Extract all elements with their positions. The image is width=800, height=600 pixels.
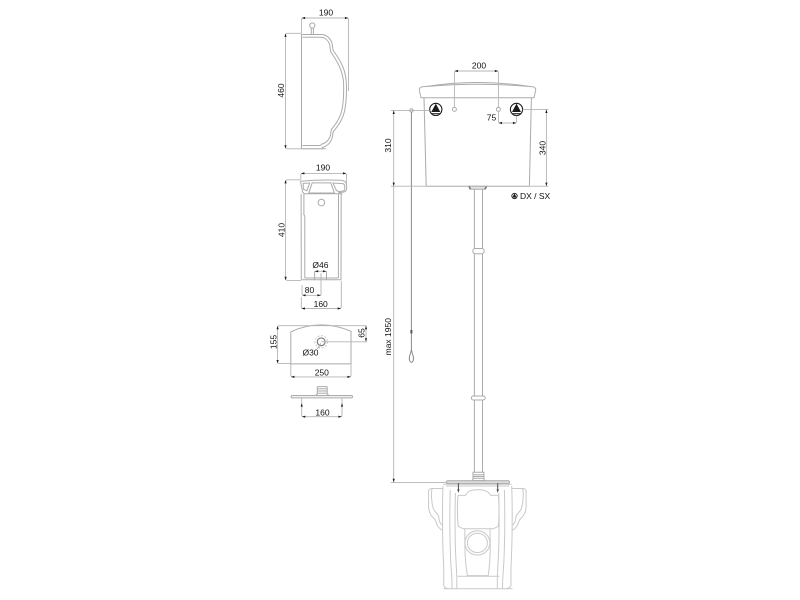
svg-text:190: 190 <box>319 8 333 18</box>
svg-text:155: 155 <box>268 335 278 349</box>
svg-text:75: 75 <box>487 113 497 123</box>
svg-text:190: 190 <box>316 163 330 173</box>
svg-text:80: 80 <box>305 285 315 295</box>
svg-text:410: 410 <box>276 223 286 237</box>
svg-text:65: 65 <box>357 328 367 338</box>
svg-text:460: 460 <box>276 83 286 97</box>
svg-text:340: 340 <box>537 141 547 155</box>
svg-text:160: 160 <box>315 408 329 418</box>
svg-text:250: 250 <box>315 368 329 378</box>
svg-text:max 1950: max 1950 <box>383 318 393 356</box>
svg-text:310: 310 <box>383 138 393 152</box>
svg-text:160: 160 <box>314 299 328 309</box>
svg-text:200: 200 <box>472 61 486 71</box>
svg-text:DX / SX: DX / SX <box>520 191 551 201</box>
svg-text:Ø46: Ø46 <box>312 260 328 270</box>
svg-text:Ø30: Ø30 <box>302 347 318 357</box>
